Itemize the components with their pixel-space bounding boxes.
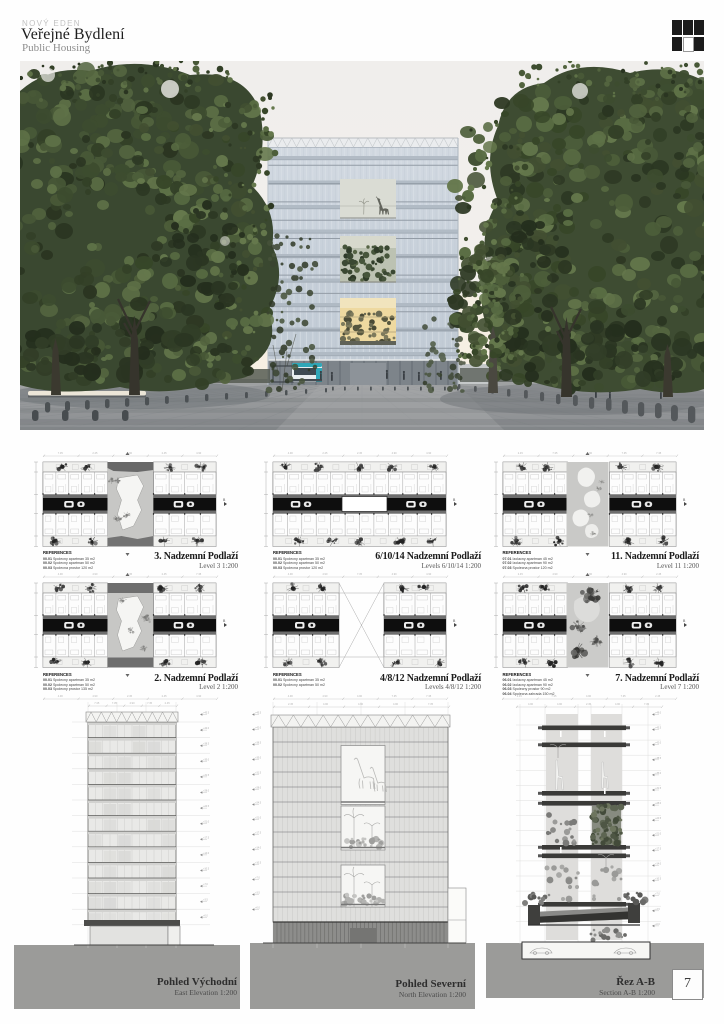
svg-text:7.35: 7.35 bbox=[552, 451, 558, 455]
svg-text:4.90: 4.90 bbox=[358, 702, 364, 706]
svg-text:+45.5: +45.5 bbox=[255, 713, 262, 715]
svg-text:+21.0: +21.0 bbox=[255, 818, 262, 820]
svg-text:+3.5: +3.5 bbox=[655, 909, 660, 911]
svg-text:+14.0: +14.0 bbox=[255, 848, 262, 850]
svg-text:4.90: 4.90 bbox=[58, 572, 64, 576]
svg-text:+17.5: +17.5 bbox=[255, 833, 262, 835]
svg-text:2.45: 2.45 bbox=[517, 451, 523, 455]
svg-text:+17.5: +17.5 bbox=[655, 848, 662, 850]
svg-text:2.45: 2.45 bbox=[322, 451, 328, 455]
svg-text:2.45: 2.45 bbox=[92, 451, 98, 455]
svg-text:7.35: 7.35 bbox=[196, 572, 202, 576]
svg-text:+28.0: +28.0 bbox=[655, 803, 662, 805]
svg-text:+14.0: +14.0 bbox=[203, 853, 210, 855]
svg-text:+38.5: +38.5 bbox=[255, 743, 262, 745]
svg-text:2.45: 2.45 bbox=[127, 694, 133, 698]
svg-text:7.35: 7.35 bbox=[428, 702, 434, 706]
svg-text:2.45: 2.45 bbox=[517, 694, 523, 698]
svg-text:4.90: 4.90 bbox=[621, 572, 627, 576]
svg-text:+31.5: +31.5 bbox=[255, 773, 262, 775]
svg-text:4.90: 4.90 bbox=[196, 694, 202, 698]
svg-text:+38.5: +38.5 bbox=[655, 758, 662, 760]
svg-text:4.90: 4.90 bbox=[58, 694, 64, 698]
svg-text:4.90: 4.90 bbox=[322, 694, 328, 698]
svg-text:4.90: 4.90 bbox=[323, 702, 329, 706]
svg-text:+24.5: +24.5 bbox=[255, 803, 262, 805]
svg-text:4.90: 4.90 bbox=[92, 572, 98, 576]
svg-text:B: B bbox=[683, 619, 686, 623]
svg-text:2.45: 2.45 bbox=[655, 694, 661, 698]
svg-text:4.90: 4.90 bbox=[557, 702, 563, 706]
svg-text:7.35: 7.35 bbox=[551, 694, 557, 698]
svg-text:+42.0: +42.0 bbox=[255, 728, 262, 730]
svg-text:4.90: 4.90 bbox=[393, 702, 399, 706]
svg-text:4.90: 4.90 bbox=[392, 572, 398, 576]
svg-text:4.90: 4.90 bbox=[129, 701, 135, 705]
svg-text:4.90: 4.90 bbox=[586, 694, 592, 698]
svg-text:+0.0: +0.0 bbox=[203, 915, 208, 917]
svg-text:B: B bbox=[453, 498, 456, 502]
svg-text:2.45: 2.45 bbox=[586, 702, 592, 706]
svg-text:2.45: 2.45 bbox=[357, 451, 363, 455]
svg-text:7.35: 7.35 bbox=[621, 694, 627, 698]
svg-text:+49.0: +49.0 bbox=[655, 713, 662, 715]
svg-text:4.90: 4.90 bbox=[552, 572, 558, 576]
svg-text:+3.5: +3.5 bbox=[255, 893, 260, 895]
svg-text:7.35: 7.35 bbox=[112, 701, 118, 705]
svg-text:2.45: 2.45 bbox=[162, 694, 168, 698]
svg-text:+3.5: +3.5 bbox=[203, 900, 208, 902]
svg-text:4.90: 4.90 bbox=[392, 451, 398, 455]
svg-text:+35.0: +35.0 bbox=[255, 758, 262, 760]
svg-text:B: B bbox=[453, 619, 456, 623]
svg-text:+38.5: +38.5 bbox=[203, 744, 210, 746]
svg-text:2.45: 2.45 bbox=[162, 572, 168, 576]
svg-text:+17.5: +17.5 bbox=[203, 837, 210, 839]
svg-text:4.90: 4.90 bbox=[288, 451, 294, 455]
svg-text:7.35: 7.35 bbox=[58, 451, 64, 455]
svg-text:+31.5: +31.5 bbox=[203, 775, 210, 777]
svg-text:+10.5: +10.5 bbox=[203, 869, 210, 871]
svg-text:+24.5: +24.5 bbox=[655, 818, 662, 820]
svg-text:4.90: 4.90 bbox=[528, 702, 534, 706]
svg-text:+24.5: +24.5 bbox=[203, 806, 210, 808]
svg-text:4.90: 4.90 bbox=[196, 451, 202, 455]
svg-text:B: B bbox=[223, 619, 226, 623]
svg-text:+7.0: +7.0 bbox=[655, 894, 660, 896]
svg-text:+45.5: +45.5 bbox=[655, 728, 662, 730]
svg-text:4.90: 4.90 bbox=[288, 572, 294, 576]
svg-text:B: B bbox=[223, 498, 226, 502]
svg-text:7.35: 7.35 bbox=[426, 694, 432, 698]
svg-text:+10.5: +10.5 bbox=[255, 863, 262, 865]
svg-text:4.90: 4.90 bbox=[92, 694, 98, 698]
svg-text:4.90: 4.90 bbox=[426, 572, 432, 576]
svg-text:4.90: 4.90 bbox=[615, 702, 621, 706]
svg-text:2.45: 2.45 bbox=[656, 572, 662, 576]
svg-text:7.35: 7.35 bbox=[656, 451, 662, 455]
svg-text:+0.0: +0.0 bbox=[255, 908, 260, 910]
svg-text:+42.0: +42.0 bbox=[203, 728, 210, 730]
svg-text:+14.0: +14.0 bbox=[655, 864, 662, 866]
svg-text:7.35: 7.35 bbox=[94, 701, 100, 705]
svg-text:B: B bbox=[683, 498, 686, 502]
svg-text:4.90: 4.90 bbox=[357, 694, 363, 698]
svg-text:+42.0: +42.0 bbox=[655, 743, 662, 745]
svg-text:+7.0: +7.0 bbox=[255, 878, 260, 880]
svg-text:+21.0: +21.0 bbox=[203, 822, 210, 824]
svg-text:+28.0: +28.0 bbox=[255, 788, 262, 790]
svg-text:7.35: 7.35 bbox=[621, 451, 627, 455]
svg-text:2.45: 2.45 bbox=[162, 451, 168, 455]
svg-text:+35.0: +35.0 bbox=[203, 759, 210, 761]
svg-text:+35.0: +35.0 bbox=[655, 773, 662, 775]
svg-text:2.45: 2.45 bbox=[288, 702, 294, 706]
svg-text:7.35: 7.35 bbox=[147, 701, 153, 705]
svg-text:+7.0: +7.0 bbox=[203, 884, 208, 886]
svg-text:2.45: 2.45 bbox=[165, 701, 171, 705]
svg-text:+31.5: +31.5 bbox=[655, 788, 662, 790]
svg-text:7.35: 7.35 bbox=[357, 572, 363, 576]
svg-text:+10.5: +10.5 bbox=[655, 879, 662, 881]
svg-text:7.35: 7.35 bbox=[644, 702, 650, 706]
svg-text:+0.0: +0.0 bbox=[655, 924, 660, 926]
svg-text:+28.0: +28.0 bbox=[203, 791, 210, 793]
svg-text:4.90: 4.90 bbox=[322, 572, 328, 576]
svg-text:7.35: 7.35 bbox=[392, 694, 398, 698]
svg-text:4.90: 4.90 bbox=[288, 694, 294, 698]
svg-text:4.90: 4.90 bbox=[426, 451, 432, 455]
svg-text:+21.0: +21.0 bbox=[655, 833, 662, 835]
svg-text:2.45: 2.45 bbox=[517, 572, 523, 576]
svg-text:+45.5: +45.5 bbox=[203, 713, 210, 715]
